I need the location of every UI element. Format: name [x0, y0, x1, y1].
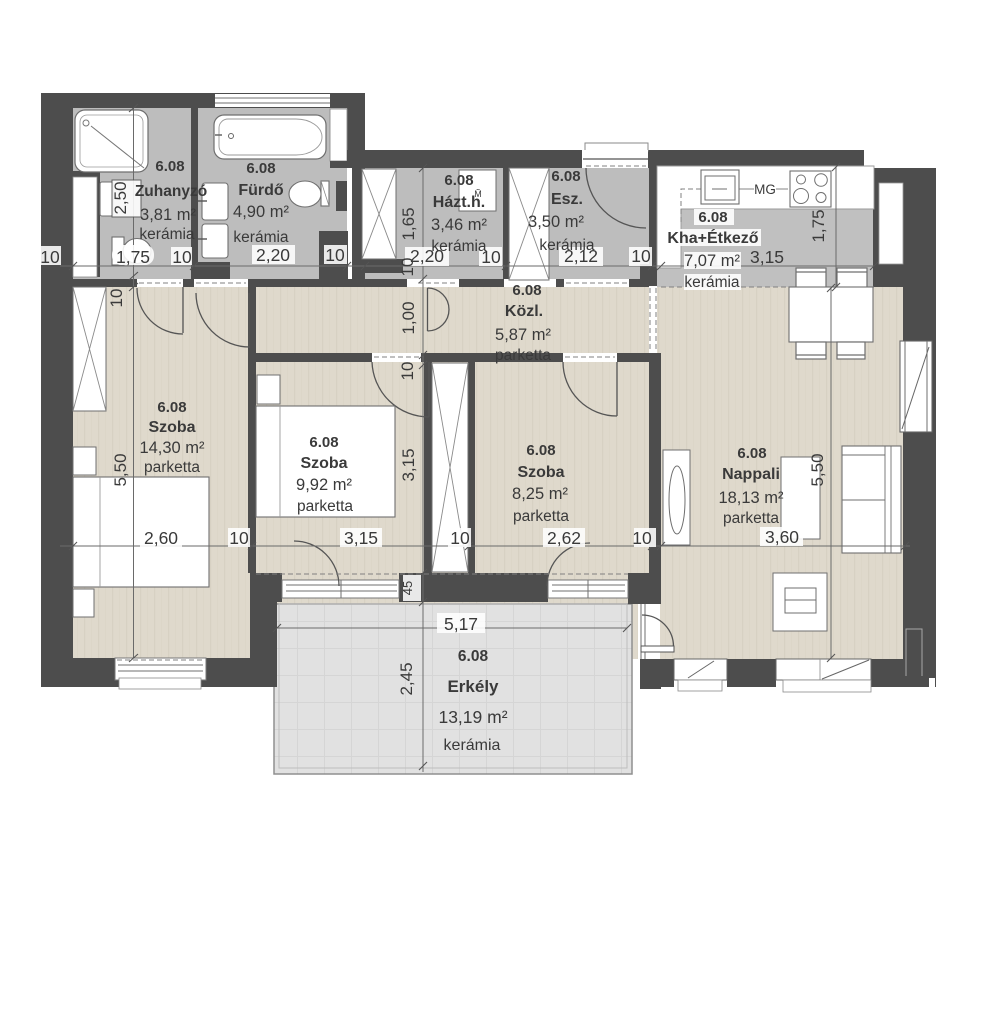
svg-text:parketta: parketta: [723, 510, 779, 527]
svg-text:Közl.: Közl.: [505, 303, 543, 320]
svg-text:5,50: 5,50: [808, 453, 827, 486]
svg-text:Erkély: Erkély: [447, 677, 499, 696]
svg-text:10: 10: [107, 289, 126, 308]
svg-text:10: 10: [325, 245, 345, 265]
svg-text:Esz.: Esz.: [551, 191, 583, 208]
svg-text:6.08: 6.08: [309, 434, 338, 451]
svg-text:10: 10: [398, 258, 417, 277]
svg-text:13,19 m²: 13,19 m²: [438, 707, 507, 727]
svg-text:2,45: 2,45: [397, 662, 416, 695]
svg-text:45: 45: [400, 581, 415, 595]
svg-text:10: 10: [229, 528, 249, 548]
svg-text:2,62: 2,62: [547, 528, 581, 548]
svg-text:3,15: 3,15: [344, 528, 378, 548]
svg-text:Házt.h.: Házt.h.: [433, 194, 485, 211]
svg-text:10: 10: [632, 528, 652, 548]
svg-text:10: 10: [398, 362, 417, 381]
svg-text:5,50: 5,50: [111, 453, 130, 486]
svg-text:5,17: 5,17: [444, 614, 478, 634]
svg-text:6.08: 6.08: [526, 442, 555, 459]
svg-text:10: 10: [172, 247, 192, 267]
svg-text:3,81 m²: 3,81 m²: [140, 206, 196, 224]
svg-text:10: 10: [450, 528, 470, 548]
svg-text:parketta: parketta: [513, 508, 569, 525]
svg-text:1,75: 1,75: [809, 209, 828, 242]
svg-text:parketta: parketta: [297, 498, 353, 515]
svg-text:kerámia: kerámia: [684, 274, 740, 291]
svg-text:3,15: 3,15: [399, 448, 418, 481]
svg-text:10: 10: [631, 246, 651, 266]
svg-text:Fürdő: Fürdő: [238, 182, 284, 199]
svg-text:2,20: 2,20: [256, 245, 290, 265]
svg-text:kerámia: kerámia: [444, 737, 501, 754]
svg-text:2,60: 2,60: [144, 528, 178, 548]
svg-text:18,13 m²: 18,13 m²: [718, 489, 784, 507]
svg-text:10: 10: [40, 247, 60, 267]
svg-text:MG: MG: [754, 182, 776, 197]
svg-text:6.08: 6.08: [737, 445, 766, 462]
svg-text:9,92 m²: 9,92 m²: [296, 476, 352, 494]
svg-text:6.08: 6.08: [444, 172, 473, 189]
svg-text:1,75: 1,75: [116, 247, 150, 267]
svg-text:6.08: 6.08: [155, 158, 184, 175]
svg-text:8,25 m²: 8,25 m²: [512, 485, 568, 503]
svg-text:10: 10: [481, 247, 501, 267]
svg-text:1,65: 1,65: [399, 207, 418, 240]
svg-text:kerámia: kerámia: [139, 226, 195, 243]
svg-text:3,50 m²: 3,50 m²: [528, 213, 584, 231]
svg-text:Kha+Étkező: Kha+Étkező: [667, 228, 758, 247]
svg-text:3,60: 3,60: [765, 527, 799, 547]
svg-text:5,87 m²: 5,87 m²: [495, 326, 551, 344]
svg-text:7,07 m²: 7,07 m²: [684, 252, 740, 270]
svg-text:6.08: 6.08: [698, 209, 727, 226]
svg-text:1,00: 1,00: [399, 301, 418, 334]
svg-text:Szoba: Szoba: [300, 455, 347, 472]
svg-text:6.08: 6.08: [157, 399, 186, 416]
svg-text:14,30 m²: 14,30 m²: [139, 439, 205, 457]
svg-text:6.08: 6.08: [246, 160, 275, 177]
svg-text:3,46 m²: 3,46 m²: [431, 216, 487, 234]
svg-text:Nappali: Nappali: [722, 466, 780, 483]
svg-text:4,90 m²: 4,90 m²: [233, 203, 289, 221]
svg-text:6.08: 6.08: [512, 282, 541, 299]
svg-text:3,15: 3,15: [750, 247, 784, 267]
svg-text:kerámia: kerámia: [233, 229, 289, 246]
svg-text:6.08: 6.08: [458, 648, 489, 665]
svg-text:parketta: parketta: [495, 347, 551, 364]
svg-text:6.08: 6.08: [551, 168, 580, 185]
svg-text:Szoba: Szoba: [517, 464, 564, 481]
svg-text:parketta: parketta: [144, 459, 200, 476]
svg-text:Zuhanyzó: Zuhanyzó: [135, 183, 207, 200]
svg-text:2,50: 2,50: [111, 181, 130, 214]
svg-text:Szoba: Szoba: [148, 419, 195, 436]
svg-text:2,12: 2,12: [564, 246, 598, 266]
